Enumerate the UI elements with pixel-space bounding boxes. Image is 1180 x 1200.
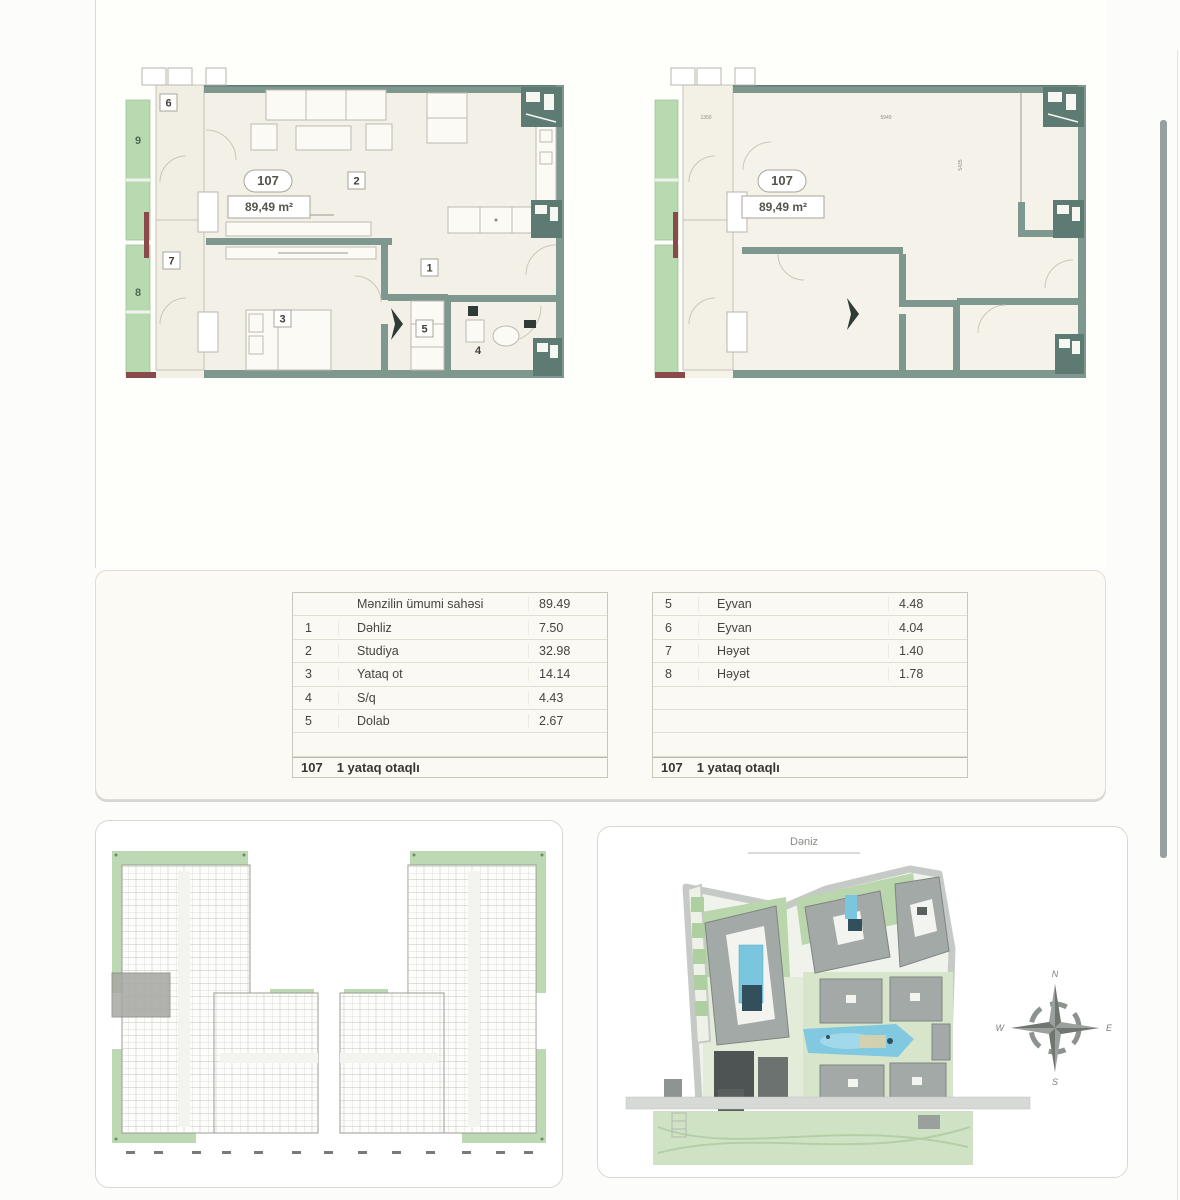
footer-label: 1 yataq otaqlı — [337, 760, 420, 775]
svg-text:4: 4 — [475, 345, 482, 357]
dimension-ticks — [126, 1151, 533, 1154]
svg-text:9: 9 — [135, 135, 141, 147]
compass-icon: N E S W — [996, 969, 1114, 1087]
room-marker-6: 6 — [160, 94, 177, 111]
dim-top-right: 5949 — [880, 115, 891, 121]
building-right-wing — [340, 865, 536, 1133]
room-marker-9: 9 — [135, 135, 141, 147]
floorplan-unfurnished: 1350 5949 5435 107 89,49 m² — [628, 62, 1093, 412]
site-plan: Dəniz — [598, 827, 1127, 1177]
bottom-road — [626, 1097, 1030, 1165]
footer-unit: 107 — [301, 760, 323, 775]
table-row: 5 Dolab 2.67 — [293, 710, 607, 733]
footer-label: 1 yataq otaqlı — [697, 760, 780, 775]
room-marker-8: 8 — [135, 287, 141, 299]
unit-area: 89,49 m² — [245, 200, 293, 214]
unit-area: 89,49 m² — [759, 200, 807, 214]
dim-right-vertical: 5435 — [958, 159, 964, 170]
table-empty-row — [653, 733, 967, 756]
room-marker-7: 7 — [163, 252, 180, 269]
svg-text:2: 2 — [353, 176, 359, 188]
table-row: 2 Studiya 32.98 — [293, 640, 607, 663]
table-row: 1 Dəhliz 7.50 — [293, 616, 607, 639]
table-row: 6 Eyvan 4.04 — [653, 616, 967, 639]
room-marker-5: 5 — [416, 320, 433, 337]
table-footer: 107 1 yataq otaqlı — [293, 757, 607, 777]
table-row: 3 Yataq ot 14.14 — [293, 663, 607, 686]
table-empty-row — [293, 733, 607, 756]
table-header-row: Mənzilin ümumi sahəsi 89.49 — [293, 593, 607, 616]
footer-unit: 107 — [661, 760, 683, 775]
svg-text:8: 8 — [135, 287, 141, 299]
scrollbar[interactable] — [1160, 120, 1167, 858]
area-table-left: Mənzilin ümumi sahəsi 89.49 1 Dəhliz 7.5… — [292, 592, 608, 778]
floor-overview-card — [95, 820, 563, 1188]
highlighted-unit[interactable] — [112, 973, 170, 1017]
water-plaza — [803, 1024, 914, 1057]
table-footer: 107 1 yataq otaqlı — [653, 757, 967, 777]
area-tables-card: Mənzilin ümumi sahəsi 89.49 1 Dəhliz 7.5… — [95, 570, 1106, 800]
table-row: 4 S/q 4.43 — [293, 687, 607, 710]
floor-overview-plan — [96, 821, 562, 1187]
area-table-right: 5 Eyvan 4.48 6 Eyvan 4.04 7 Həyət 1.40 8… — [652, 592, 968, 778]
table-row: 8 Həyət 1.78 — [653, 663, 967, 686]
room-marker-2: 2 — [348, 172, 365, 189]
room-marker-4: 4 — [475, 345, 482, 357]
room-marker-1: 1 — [421, 259, 438, 276]
floorplan-panel: 107 89,49 m² 6 7 9 8 2 1 3 5 4 — [95, 0, 1107, 568]
table-empty-row — [653, 687, 967, 710]
compass-south-label: S — [1052, 1077, 1058, 1087]
table-empty-row — [653, 710, 967, 733]
table-row: 5 Eyvan 4.48 — [653, 593, 967, 616]
unit-number: 107 — [257, 173, 279, 188]
unit-number: 107 — [771, 173, 793, 188]
svg-text:1: 1 — [426, 263, 432, 275]
room-marker-3: 3 — [274, 310, 291, 327]
page-right-border — [1177, 50, 1178, 1200]
svg-text:6: 6 — [165, 98, 171, 110]
table-row: 7 Həyət 1.40 — [653, 640, 967, 663]
site-plan-card: Dəniz — [597, 826, 1128, 1178]
svg-text:3: 3 — [279, 314, 285, 326]
compass-west-label: W — [996, 1023, 1006, 1033]
svg-text:5: 5 — [421, 324, 427, 336]
floorplan-furnished: 107 89,49 m² 6 7 9 8 2 1 3 5 4 — [116, 62, 576, 412]
compass-north-label: N — [1052, 969, 1059, 979]
svg-text:7: 7 — [168, 256, 174, 268]
compass-east-label: E — [1106, 1023, 1113, 1033]
site-title: Dəniz — [790, 836, 818, 848]
dim-top-left: 1350 — [700, 115, 711, 121]
